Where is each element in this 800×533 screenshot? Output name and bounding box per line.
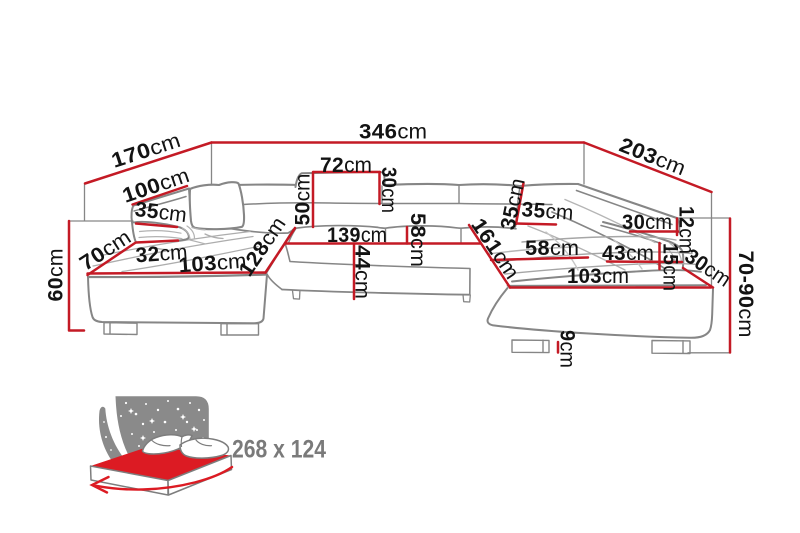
svg-text:50cm: 50cm: [292, 174, 315, 226]
svg-text:268 x 124: 268 x 124: [232, 436, 326, 464]
svg-text:72cm: 72cm: [320, 154, 372, 177]
svg-text:9cm: 9cm: [556, 330, 579, 368]
svg-text:44cm: 44cm: [351, 245, 374, 299]
svg-text:43cm: 43cm: [602, 242, 654, 265]
svg-text:139cm: 139cm: [327, 224, 387, 247]
svg-text:60cm: 60cm: [45, 249, 68, 302]
svg-text:346cm: 346cm: [359, 121, 427, 144]
svg-text:58cm: 58cm: [406, 213, 429, 267]
svg-text:103cm: 103cm: [567, 265, 629, 288]
svg-text:35cm: 35cm: [521, 198, 574, 225]
svg-text:15cm: 15cm: [659, 243, 682, 291]
svg-text:30cm: 30cm: [377, 167, 400, 213]
svg-text:30cm: 30cm: [622, 211, 672, 234]
svg-text:70-90cm: 70-90cm: [734, 251, 757, 338]
svg-text:58cm: 58cm: [525, 237, 579, 260]
